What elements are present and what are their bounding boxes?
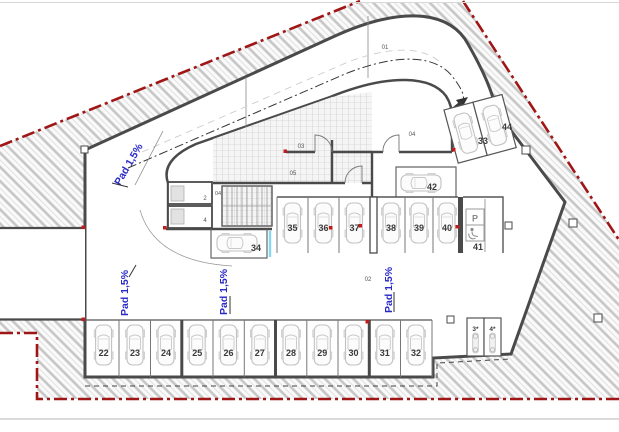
spot-number-33: 33 — [478, 136, 488, 146]
spot-number-44: 44 — [502, 122, 512, 132]
spot-number-34: 34 — [251, 243, 261, 253]
room-04-label: 04 — [409, 132, 416, 138]
spot-number-28: 28 — [286, 348, 296, 358]
aisle-label: 02 — [365, 277, 372, 283]
spot-number-29: 29 — [317, 348, 327, 358]
slope-label-mid: Pad 1,5% — [218, 268, 230, 315]
floor-plan-canvas: P — [0, 0, 619, 432]
spot-number-38: 38 — [386, 223, 396, 233]
spot-number-37: 37 — [349, 223, 359, 233]
spot-number-36: 36 — [318, 223, 328, 233]
spot-number-30: 30 — [348, 348, 358, 358]
spot-number-moto-4: 4* — [489, 326, 496, 333]
spot-number-moto-3: 3* — [472, 326, 479, 333]
spot-number-22: 22 — [99, 348, 109, 358]
spot-number-42: 42 — [427, 182, 437, 192]
driveway-strip — [0, 228, 85, 319]
moto-spots — [467, 318, 501, 356]
disabled-parking-p: P — [472, 214, 478, 224]
spot-number-35: 35 — [287, 223, 297, 233]
spot-number-24: 24 — [161, 348, 171, 358]
spot-number-40: 40 — [442, 223, 452, 233]
spot-number-31: 31 — [380, 348, 390, 358]
spot-number-27: 27 — [255, 348, 265, 358]
fixture-b — [171, 209, 184, 224]
spot-number-39: 39 — [414, 223, 424, 233]
stair-area-label: 04 — [215, 191, 221, 197]
spot-number-23: 23 — [130, 348, 140, 358]
room-03-label: 03 — [298, 144, 305, 150]
spot-number-25: 25 — [192, 348, 202, 358]
spot-number-41: 41 — [473, 242, 483, 252]
spot-number-32: 32 — [411, 348, 421, 358]
ramp-label: 01 — [382, 45, 389, 51]
room-05-label: 05 — [290, 171, 297, 177]
floor-plan-svg: P — [0, 0, 619, 432]
spot-number-26: 26 — [223, 348, 233, 358]
slope-label-right: Pad 1,5% — [383, 266, 395, 313]
fixture-a — [171, 186, 184, 201]
